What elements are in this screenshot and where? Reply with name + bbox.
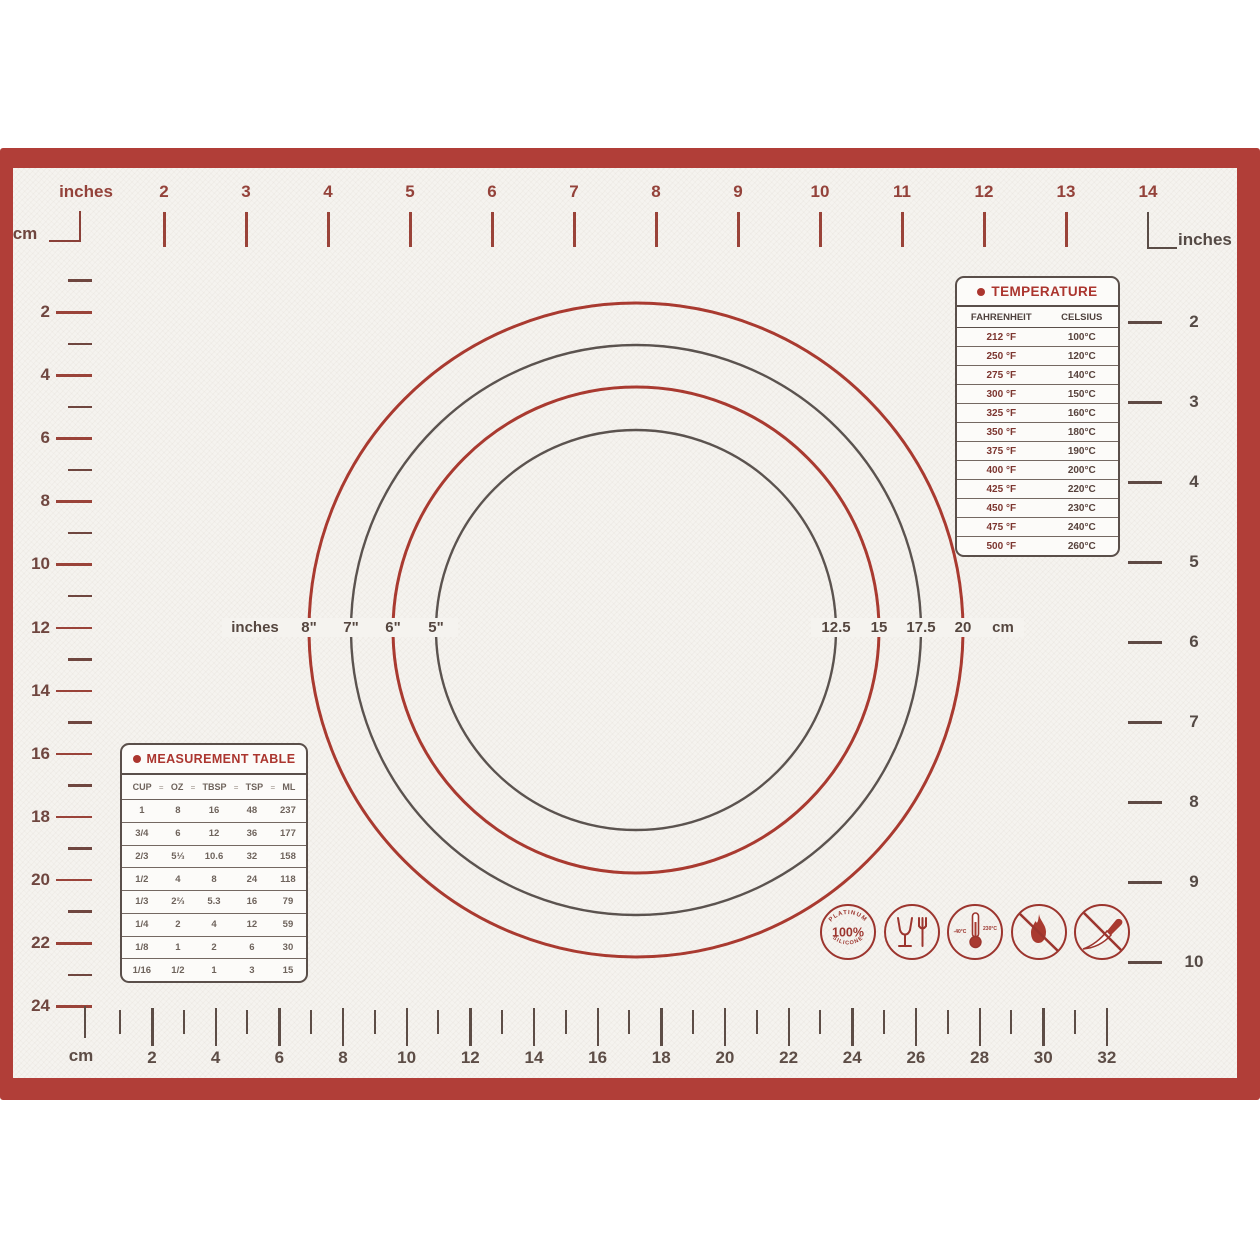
- measurement-col-header: TSP: [246, 782, 264, 792]
- left-ruler-number: 14: [12, 681, 50, 701]
- bottom-ruler-number: 4: [199, 1048, 233, 1068]
- no-open-flame-icon: [1009, 902, 1069, 962]
- measurement-value: 237: [270, 805, 306, 816]
- temperature-row: 425 °F220°C: [957, 480, 1118, 499]
- bottom-ruler-minor-tick: [883, 1010, 885, 1034]
- right-ruler-tick: [1128, 881, 1162, 884]
- ring-diameter-label-inch: 6": [371, 618, 415, 637]
- measurement-value: 10.6: [194, 851, 234, 862]
- equals-separator: =: [159, 783, 164, 792]
- temp-max-text: 230°C: [983, 926, 997, 932]
- bottom-ruler-minor-tick: [628, 1010, 630, 1034]
- fahrenheit-value: 275 °F: [957, 370, 1046, 381]
- top-ruler-number: 6: [476, 182, 508, 202]
- top-ruler-unit-inches: inches: [40, 182, 132, 202]
- bottom-ruler-tick: [915, 1008, 918, 1046]
- temperature-range-icon: -40°C 230°C: [945, 902, 1005, 962]
- measurement-value: 1: [122, 805, 162, 816]
- top-ruler-tick: [737, 212, 740, 247]
- measurement-value: 3: [234, 965, 270, 976]
- no-knife-icon: [1072, 902, 1132, 962]
- celsius-value: 190°C: [1046, 446, 1118, 457]
- temperature-row: 500 °F260°C: [957, 537, 1118, 555]
- right-ruler-number: 9: [1174, 872, 1214, 892]
- measurement-table-header: CUP=OZ=TBSP=TSP=ML: [122, 775, 306, 800]
- bottom-ruler-tick: [1106, 1008, 1109, 1046]
- top-ruler-number: 5: [394, 182, 426, 202]
- temperature-row: 212 °F100°C: [957, 328, 1118, 347]
- measurement-value: 16: [234, 896, 270, 907]
- temperature-row: 350 °F180°C: [957, 423, 1118, 442]
- measurement-value: 1/2: [122, 874, 162, 885]
- celsius-value: 160°C: [1046, 408, 1118, 419]
- celsius-value: 150°C: [1046, 389, 1118, 400]
- measurement-value: 2⅔: [162, 896, 194, 907]
- svg-text:PLATINUM: PLATINUM: [828, 910, 868, 923]
- fahrenheit-value: 425 °F: [957, 484, 1046, 495]
- bottom-ruler-number: 20: [708, 1048, 742, 1068]
- measurement-value: 36: [234, 828, 270, 839]
- left-ruler-minor-tick: [68, 279, 92, 282]
- top-ruler-number: 7: [558, 182, 590, 202]
- measurement-value: 1/16: [122, 965, 162, 976]
- left-ruler-number: 22: [12, 933, 50, 953]
- equals-separator: =: [191, 783, 196, 792]
- right-ruler-tick: [1128, 961, 1162, 964]
- bottom-ruler-tick: [469, 1008, 472, 1046]
- measurement-value: 12: [194, 828, 234, 839]
- measurement-value: 8: [194, 874, 234, 885]
- measurement-value: 1/2: [162, 965, 194, 976]
- fahrenheit-value: 300 °F: [957, 389, 1046, 400]
- bottom-ruler-minor-tick: [692, 1010, 694, 1034]
- top-ruler-tick: [327, 212, 330, 247]
- printed-markings: 234567891011121314inchescminches24681012…: [0, 0, 1260, 1260]
- corner-bracket-h: [49, 240, 81, 242]
- left-ruler-tick: [56, 879, 92, 882]
- right-ruler-tick: [1128, 321, 1162, 324]
- fahrenheit-value: 212 °F: [957, 332, 1046, 343]
- corner-bracket-h: [1147, 247, 1177, 249]
- measurement-value: 177: [270, 828, 306, 839]
- bottom-ruler-minor-tick: [1010, 1010, 1012, 1034]
- measurement-col-header: TBSP: [202, 782, 226, 792]
- left-ruler-tick: [56, 816, 92, 819]
- left-ruler-minor-tick: [68, 721, 92, 724]
- top-ruler-tick: [819, 212, 822, 247]
- ring-diameter-label-inch: 8": [287, 618, 331, 637]
- measurement-value: 2: [162, 919, 194, 930]
- bottom-ruler-unit-cm: cm: [60, 1046, 102, 1066]
- circle-gauge-right-unit: cm: [982, 618, 1024, 637]
- ring-diameter-label-inch: 7": [329, 618, 373, 637]
- measurement-value: 2: [194, 942, 234, 953]
- bottom-ruler-minor-tick: [756, 1010, 758, 1034]
- right-ruler-number: 4: [1174, 472, 1214, 492]
- bottom-ruler-number: 14: [517, 1048, 551, 1068]
- temperature-title-text: TEMPERATURE: [991, 284, 1097, 299]
- left-ruler-number: 18: [12, 807, 50, 827]
- right-ruler-unit-inches: inches: [1178, 230, 1240, 250]
- top-ruler-number: 3: [230, 182, 262, 202]
- left-ruler-minor-tick: [68, 784, 92, 787]
- right-ruler-tick: [1128, 721, 1162, 724]
- right-ruler-tick: [1128, 641, 1162, 644]
- right-ruler-tick: [1128, 401, 1162, 404]
- left-ruler-tick: [56, 627, 92, 630]
- temperature-row: 375 °F190°C: [957, 442, 1118, 461]
- bullet-icon: [977, 288, 985, 296]
- top-ruler-number: 4: [312, 182, 344, 202]
- measurement-row: 3/461236177: [122, 823, 306, 846]
- measurement-row: 1/4241259: [122, 914, 306, 937]
- left-ruler-number: 16: [12, 744, 50, 764]
- measurement-row: 2/35⅓10.632158: [122, 846, 306, 869]
- top-ruler-tick: [901, 212, 904, 247]
- bottom-ruler-number: 26: [899, 1048, 933, 1068]
- measurement-value: 5.3: [194, 896, 234, 907]
- left-ruler-tick: [56, 690, 92, 693]
- measurement-row: 1/812630: [122, 937, 306, 960]
- temp-min-text: -40°C: [954, 929, 967, 935]
- measurement-value: 158: [270, 851, 306, 862]
- right-ruler-tick: [1128, 801, 1162, 804]
- temperature-row: 325 °F160°C: [957, 404, 1118, 423]
- bottom-ruler-minor-tick: [374, 1010, 376, 1034]
- measurement-value: 1: [162, 942, 194, 953]
- measurement-value: 15: [270, 965, 306, 976]
- col-fahrenheit: FAHRENHEIT: [957, 312, 1046, 323]
- measurement-value: 6: [162, 828, 194, 839]
- baking-mat-photo: 234567891011121314inchescminches24681012…: [0, 0, 1260, 1260]
- top-ruler-number: 11: [886, 182, 918, 202]
- measurement-value: 48: [234, 805, 270, 816]
- celsius-value: 100°C: [1046, 332, 1118, 343]
- bottom-ruler-tick: [851, 1008, 854, 1046]
- top-ruler-number: 12: [968, 182, 1000, 202]
- equals-separator: =: [270, 783, 275, 792]
- top-ruler-tick: [1065, 212, 1068, 247]
- measurement-value: 6: [234, 942, 270, 953]
- celsius-value: 240°C: [1046, 522, 1118, 533]
- temperature-table: TEMPERATURE FAHRENHEIT CELSIUS 212 °F100…: [955, 276, 1120, 557]
- left-ruler-number: 20: [12, 870, 50, 890]
- celsius-value: 200°C: [1046, 465, 1118, 476]
- left-ruler-number: 4: [12, 365, 50, 385]
- bottom-ruler-tick: [660, 1008, 663, 1046]
- bottom-ruler-tick: [151, 1008, 154, 1046]
- left-ruler-minor-tick: [68, 595, 92, 598]
- bottom-ruler-number: 18: [644, 1048, 678, 1068]
- bottom-ruler-number: 22: [772, 1048, 806, 1068]
- right-ruler-number: 10: [1174, 952, 1214, 972]
- measurement-value: 79: [270, 896, 306, 907]
- fahrenheit-value: 325 °F: [957, 408, 1046, 419]
- measurement-value: 1/8: [122, 942, 162, 953]
- left-ruler-minor-tick: [68, 974, 92, 977]
- celsius-value: 230°C: [1046, 503, 1118, 514]
- measurement-table-title: MEASUREMENT TABLE: [122, 745, 306, 775]
- bottom-ruler-minor-tick: [183, 1010, 185, 1034]
- measurement-value: 4: [162, 874, 194, 885]
- fahrenheit-value: 400 °F: [957, 465, 1046, 476]
- top-ruler-number: 9: [722, 182, 754, 202]
- bottom-ruler-tick: [215, 1008, 218, 1046]
- top-ruler-tick: [655, 212, 658, 247]
- bottom-ruler-minor-tick: [246, 1010, 248, 1034]
- top-ruler-tick: [409, 212, 412, 247]
- fahrenheit-value: 475 °F: [957, 522, 1046, 533]
- measurement-col-header: ML: [282, 782, 295, 792]
- top-ruler-number: 10: [804, 182, 836, 202]
- bottom-ruler-minor-tick: [819, 1010, 821, 1034]
- left-ruler-minor-tick: [68, 469, 92, 472]
- bottom-ruler-minor-tick: [565, 1010, 567, 1034]
- fahrenheit-value: 250 °F: [957, 351, 1046, 362]
- measurement-value: 1: [194, 965, 234, 976]
- left-ruler-minor-tick: [68, 406, 92, 409]
- measurement-value: 59: [270, 919, 306, 930]
- left-ruler-minor-tick: [68, 910, 92, 913]
- fahrenheit-value: 450 °F: [957, 503, 1046, 514]
- bottom-ruler-minor-tick: [1074, 1010, 1076, 1034]
- measurement-col-header: CUP: [133, 782, 152, 792]
- left-ruler-number: 24: [12, 996, 50, 1016]
- celsius-value: 120°C: [1046, 351, 1118, 362]
- right-ruler-number: 3: [1174, 392, 1214, 412]
- corner-bracket-v: [1147, 212, 1149, 249]
- left-ruler-tick: [56, 374, 92, 377]
- measurement-col-header: OZ: [171, 782, 184, 792]
- measurement-value: 24: [234, 874, 270, 885]
- right-ruler-number: 6: [1174, 632, 1214, 652]
- bottom-ruler-number: 24: [835, 1048, 869, 1068]
- left-ruler-minor-tick: [68, 532, 92, 535]
- left-ruler-tick: [56, 500, 92, 503]
- left-ruler-unit-cm: cm: [6, 224, 44, 244]
- temperature-table-title: TEMPERATURE: [957, 278, 1118, 307]
- bottom-ruler-number: 6: [262, 1048, 296, 1068]
- measurement-value: 30: [270, 942, 306, 953]
- temperature-row: 275 °F140°C: [957, 366, 1118, 385]
- measurement-value: 118: [270, 874, 306, 885]
- equals-separator: =: [234, 783, 239, 792]
- measurement-value: 1/4: [122, 919, 162, 930]
- fahrenheit-value: 500 °F: [957, 541, 1046, 552]
- left-ruler-number: 6: [12, 428, 50, 448]
- measurement-value: 12: [234, 919, 270, 930]
- measurement-table: MEASUREMENT TABLE CUP=OZ=TBSP=TSP=ML 181…: [120, 743, 308, 983]
- bottom-ruler-tick: [278, 1008, 281, 1046]
- temperature-row: 475 °F240°C: [957, 518, 1118, 537]
- top-ruler-number: 8: [640, 182, 672, 202]
- right-ruler-tick: [1128, 561, 1162, 564]
- ring-diameter-label-inch: 5": [414, 618, 458, 637]
- ring-diameter-label-cm: 12.5: [811, 618, 861, 637]
- celsius-value: 140°C: [1046, 370, 1118, 381]
- temperature-row: 250 °F120°C: [957, 347, 1118, 366]
- left-ruler-number: 8: [12, 491, 50, 511]
- platinum-silicone-icon: PLATINUM 100% SILICONE: [818, 902, 878, 962]
- measurement-row: 1/161/21315: [122, 959, 306, 981]
- bottom-ruler-number: 12: [453, 1048, 487, 1068]
- bottom-ruler-tick: [406, 1008, 409, 1046]
- left-ruler-tick: [56, 753, 92, 756]
- celsius-value: 180°C: [1046, 427, 1118, 438]
- measurement-value: 8: [162, 805, 194, 816]
- fahrenheit-value: 350 °F: [957, 427, 1046, 438]
- top-ruler-number: 2: [148, 182, 180, 202]
- left-ruler-number: 12: [12, 618, 50, 638]
- measurement-value: 2/3: [122, 851, 162, 862]
- left-ruler-tick: [56, 942, 92, 945]
- silicone-top-text: PLATINUM: [828, 910, 868, 923]
- measurement-value: 16: [194, 805, 234, 816]
- bottom-ruler-tick: [597, 1008, 600, 1046]
- right-ruler-number: 5: [1174, 552, 1214, 572]
- top-ruler-number: 13: [1050, 182, 1082, 202]
- temperature-row: 400 °F200°C: [957, 461, 1118, 480]
- bottom-ruler-number: 2: [135, 1048, 169, 1068]
- fahrenheit-value: 375 °F: [957, 446, 1046, 457]
- left-ruler-number: 10: [12, 554, 50, 574]
- top-ruler-tick: [491, 212, 494, 247]
- bottom-ruler-tick: [533, 1008, 536, 1046]
- measurement-rows: 1816482373/4612361772/35⅓10.6321581/2482…: [122, 800, 306, 981]
- food-safe-icon: [882, 902, 942, 962]
- safety-icons-row: PLATINUM 100% SILICONE -40°C 230°C: [818, 900, 1132, 964]
- right-ruler-number: 2: [1174, 312, 1214, 332]
- bottom-ruler-number: 32: [1090, 1048, 1124, 1068]
- bottom-ruler-tick: [788, 1008, 791, 1046]
- measurement-value: 5⅓: [162, 851, 194, 862]
- right-ruler-number: 7: [1174, 712, 1214, 732]
- temperature-rows: 212 °F100°C250 °F120°C275 °F140°C300 °F1…: [957, 328, 1118, 555]
- left-ruler-minor-tick: [68, 343, 92, 346]
- right-ruler-tick: [1128, 481, 1162, 484]
- top-ruler-tick: [573, 212, 576, 247]
- temperature-row: 450 °F230°C: [957, 499, 1118, 518]
- bottom-ruler-minor-tick: [501, 1010, 503, 1034]
- left-ruler-number: 2: [12, 302, 50, 322]
- bottom-ruler-number: 16: [581, 1048, 615, 1068]
- measurement-value: 1/3: [122, 896, 162, 907]
- bottom-ruler-minor-tick: [947, 1010, 949, 1034]
- bottom-ruler-tick: [724, 1008, 727, 1046]
- corner-bracket-v: [84, 1006, 86, 1038]
- bottom-ruler-minor-tick: [310, 1010, 312, 1034]
- temperature-table-header: FAHRENHEIT CELSIUS: [957, 307, 1118, 328]
- left-ruler-minor-tick: [68, 847, 92, 850]
- bottom-ruler-number: 8: [326, 1048, 360, 1068]
- left-ruler-tick: [56, 437, 92, 440]
- ring-diameter-label-cm: 15: [854, 618, 904, 637]
- bullet-icon: [133, 755, 141, 763]
- bottom-ruler-number: 28: [963, 1048, 997, 1068]
- right-ruler-number: 8: [1174, 792, 1214, 812]
- bottom-ruler-minor-tick: [119, 1010, 121, 1034]
- bottom-ruler-minor-tick: [437, 1010, 439, 1034]
- left-ruler-minor-tick: [68, 658, 92, 661]
- bottom-ruler-tick: [979, 1008, 982, 1046]
- top-ruler-tick: [983, 212, 986, 247]
- circle-gauge-left-unit: inches: [222, 618, 288, 637]
- measurement-value: 4: [194, 919, 234, 930]
- top-ruler-tick: [163, 212, 166, 247]
- measurement-title-text: MEASUREMENT TABLE: [147, 752, 296, 766]
- bottom-ruler-number: 30: [1026, 1048, 1060, 1068]
- bottom-ruler-tick: [342, 1008, 345, 1046]
- col-celsius: CELSIUS: [1046, 312, 1118, 323]
- bottom-ruler-number: 10: [390, 1048, 424, 1068]
- bottom-ruler-tick: [1042, 1008, 1045, 1046]
- temperature-row: 300 °F150°C: [957, 385, 1118, 404]
- measurement-row: 1/24824118: [122, 868, 306, 891]
- left-ruler-tick: [56, 563, 92, 566]
- left-ruler-tick: [56, 1005, 92, 1008]
- top-ruler-tick: [245, 212, 248, 247]
- measurement-row: 181648237: [122, 800, 306, 823]
- measurement-value: 32: [234, 851, 270, 862]
- celsius-value: 260°C: [1046, 541, 1118, 552]
- left-ruler-tick: [56, 311, 92, 314]
- corner-bracket-v: [79, 211, 81, 242]
- measurement-value: 3/4: [122, 828, 162, 839]
- top-ruler-number: 14: [1132, 182, 1164, 202]
- measurement-row: 1/32⅔5.31679: [122, 891, 306, 914]
- celsius-value: 220°C: [1046, 484, 1118, 495]
